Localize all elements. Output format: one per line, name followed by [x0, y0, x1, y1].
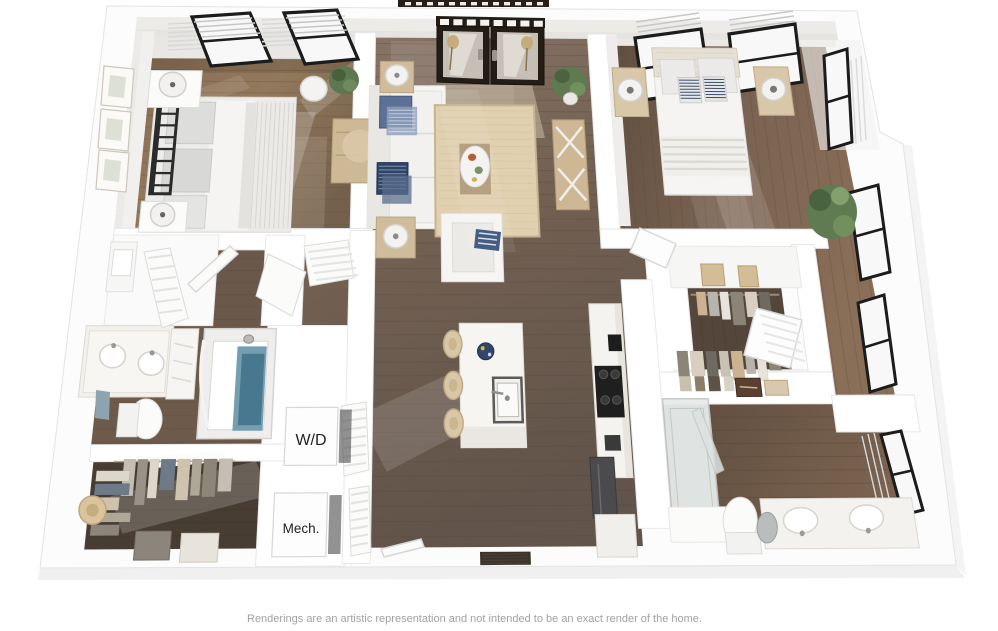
svg-text:W/D: W/D [295, 432, 326, 449]
svg-text:Mech.: Mech. [283, 521, 320, 536]
svg-text:Renderings are an artistic rep: Renderings are an artistic representatio… [247, 613, 702, 625]
